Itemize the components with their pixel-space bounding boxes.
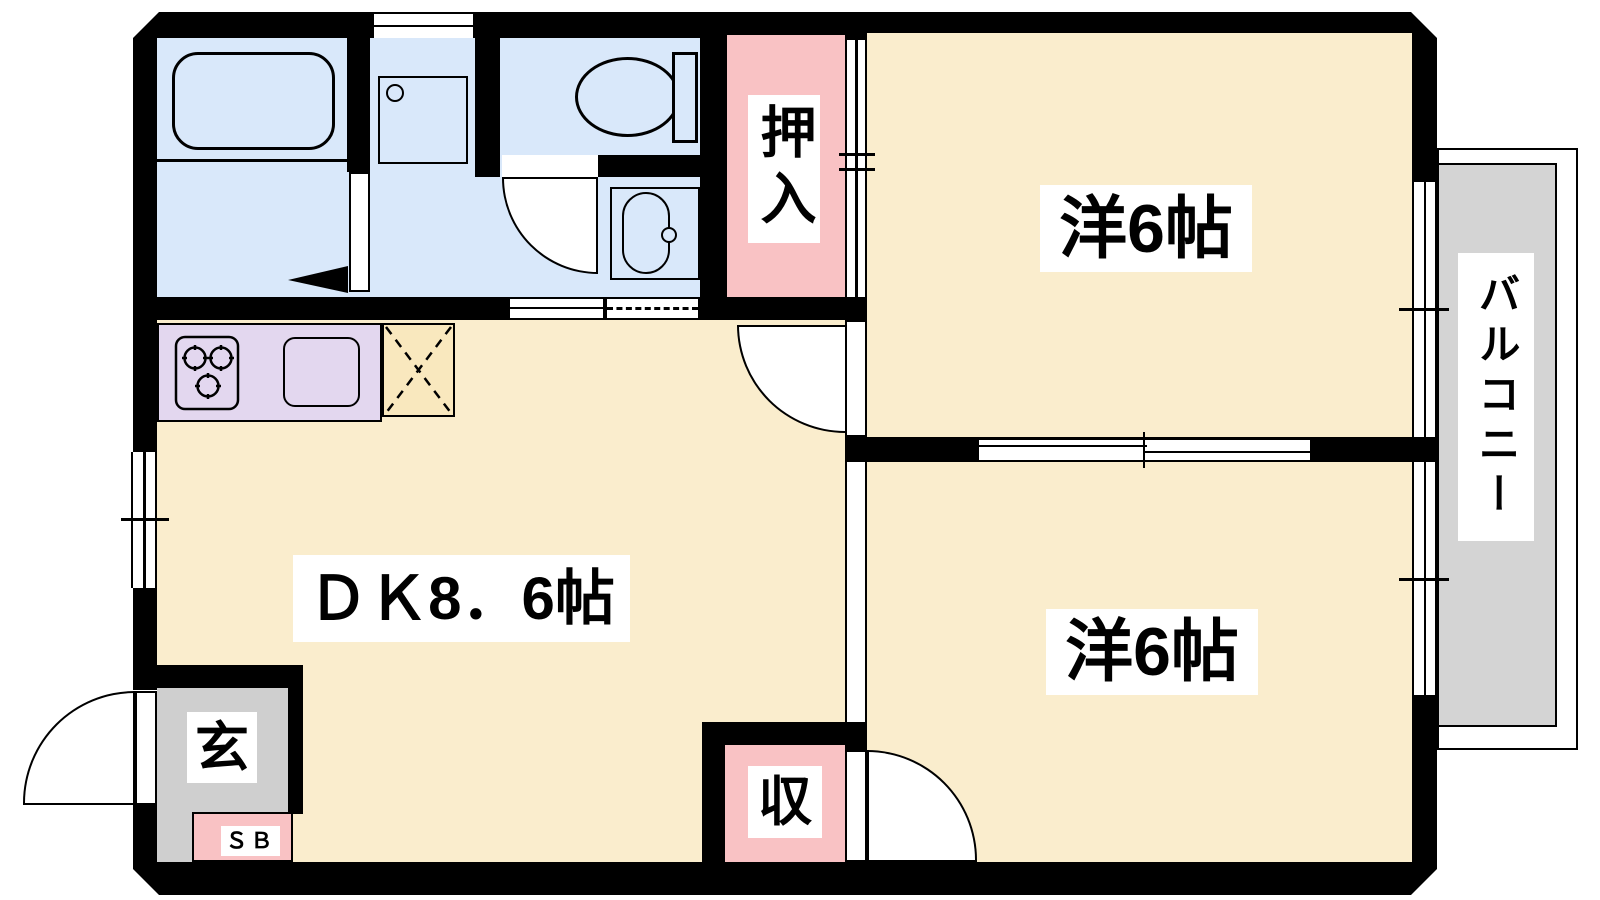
closet-label: 押入 <box>748 95 820 243</box>
entrance-top-wall <box>157 665 303 688</box>
entrance-label: 玄 <box>187 712 257 783</box>
kitchen-sink <box>283 337 360 407</box>
dk-label: ＤＫ8．6帖 <box>293 555 630 642</box>
sliding-panel-left <box>979 445 1147 447</box>
bathtub-edge-line <box>157 159 347 162</box>
door-leaf-top-room <box>845 320 867 437</box>
washing-machine-drain <box>386 84 404 102</box>
partition-tick-2 <box>839 168 875 171</box>
room-bottom-label: 洋6帖 <box>1046 609 1258 695</box>
room-divider-sliding-door <box>977 438 1312 462</box>
sliding-door-tick <box>1143 432 1145 468</box>
floor-plan: バルコニー <box>0 0 1600 900</box>
bathtub <box>172 52 335 150</box>
fridge-space <box>382 323 455 417</box>
bath-door-leaf <box>349 172 370 292</box>
sliding-panel-right <box>1143 451 1310 453</box>
entrance-door-leaf <box>135 691 157 805</box>
toilet-doorway <box>502 155 598 177</box>
window-room-top-tick <box>1399 308 1449 311</box>
stove <box>174 335 240 411</box>
partition-lower <box>845 462 867 722</box>
balcony-label: バルコニー <box>1458 253 1534 541</box>
shoe-box-label: ＳＢ <box>221 826 280 856</box>
door-leaf-bottom-room <box>845 750 867 862</box>
storage-label: 収 <box>748 766 822 838</box>
partition-tick-1 <box>839 153 875 156</box>
storage-top-wall <box>702 722 867 745</box>
window-dk-tick <box>121 518 169 521</box>
window-top-glazing <box>374 25 473 27</box>
toilet-bowl <box>575 57 680 137</box>
toilet-divider-wall <box>475 38 500 177</box>
window-room-bottom-tick <box>1399 578 1449 581</box>
washroom-folding-dashes <box>607 307 698 310</box>
entrance-right-wall <box>288 688 303 814</box>
washroom-sliding-line <box>510 307 603 309</box>
washroom-sliding-door <box>508 297 605 320</box>
window-top-wall <box>374 14 473 38</box>
washroom-folding-door <box>605 297 700 320</box>
entrance-door-swing <box>23 691 135 805</box>
washbasin-faucet <box>661 227 677 243</box>
toilet-bottom-wall <box>598 155 700 177</box>
bath-divider-wall <box>347 38 370 172</box>
room-top-label: 洋6帖 <box>1040 185 1252 272</box>
toilet-tank <box>672 52 698 143</box>
